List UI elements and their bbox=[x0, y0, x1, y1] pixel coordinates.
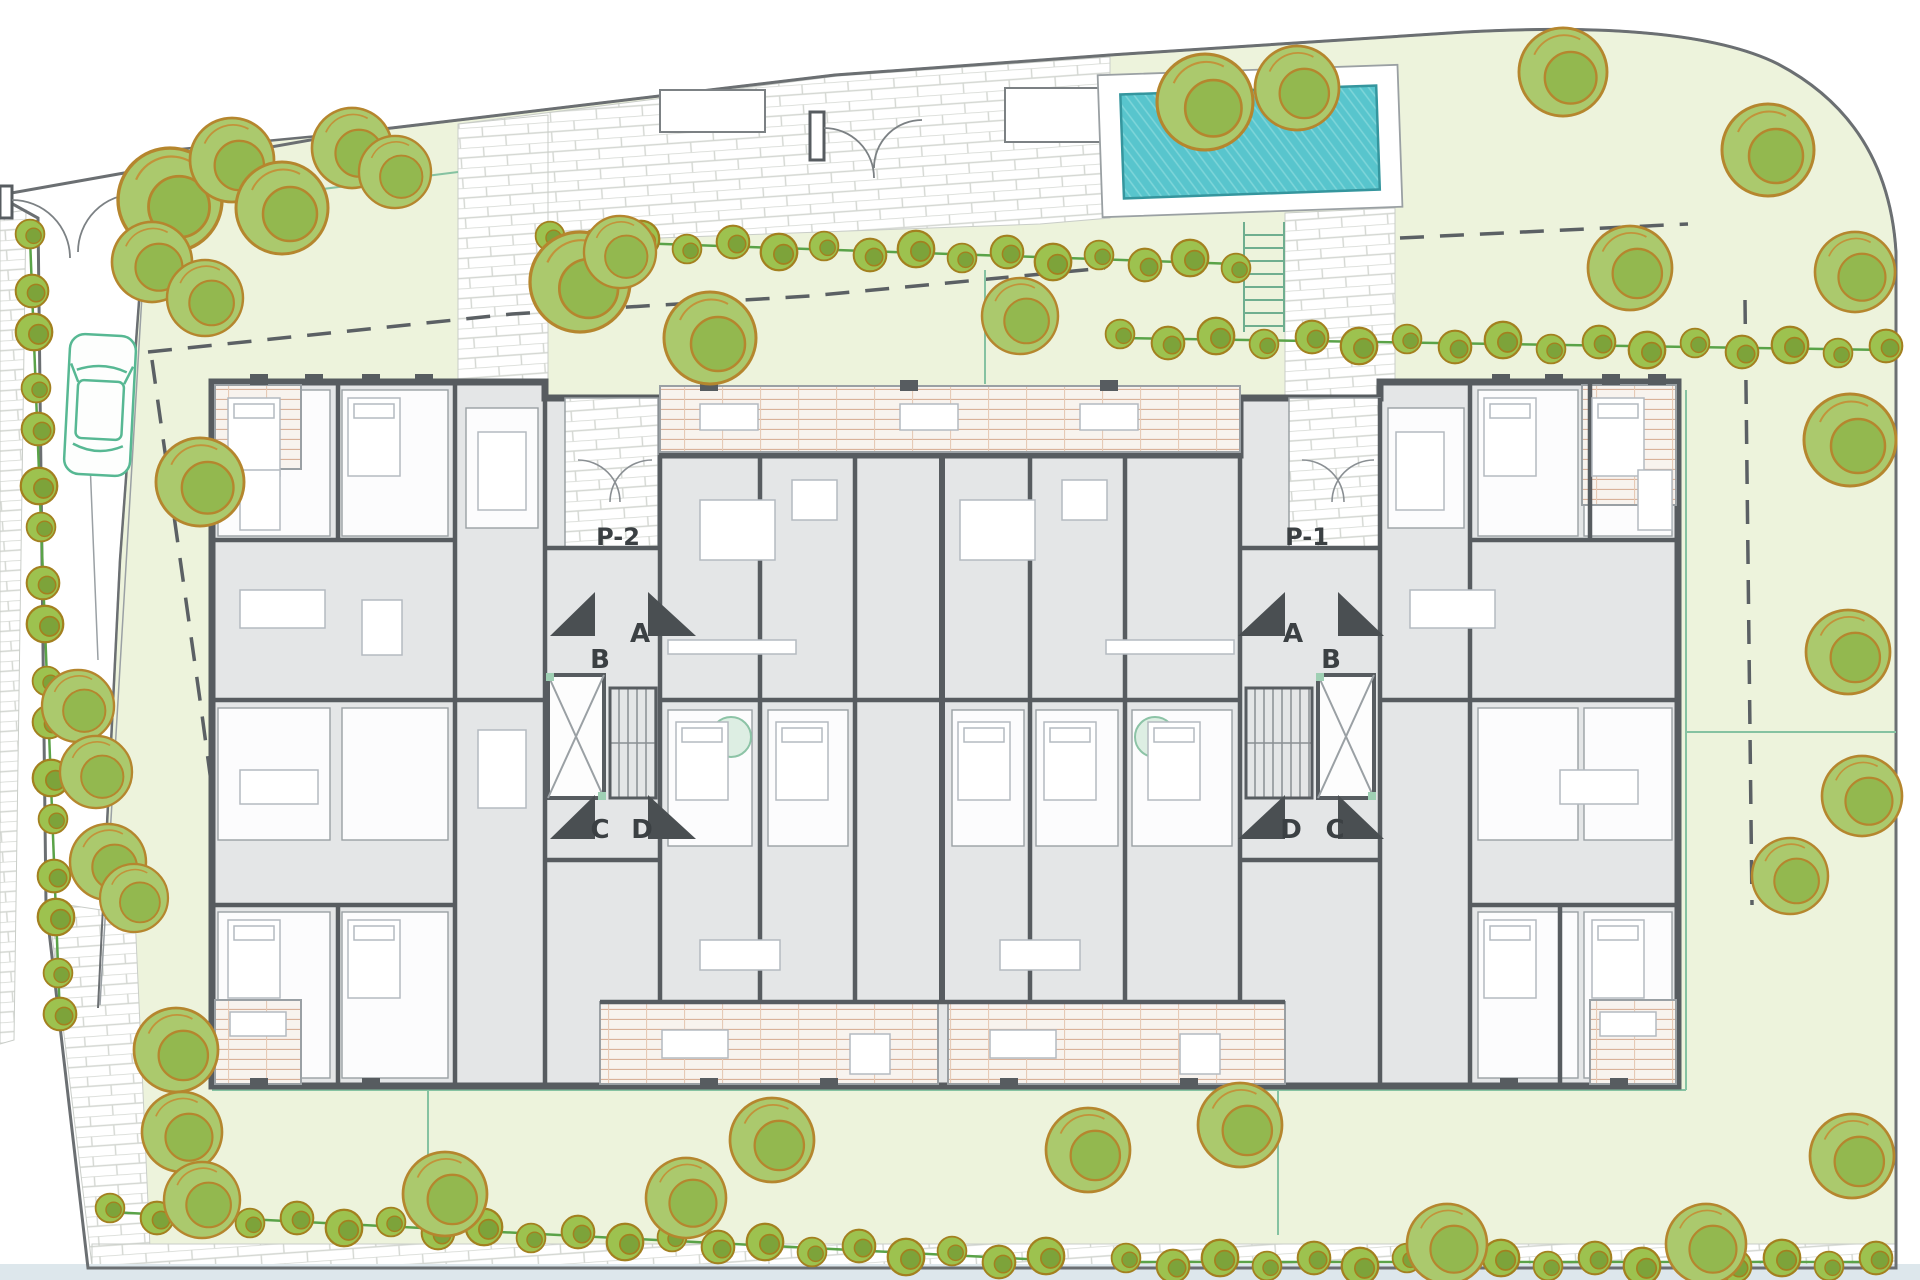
tree-icon bbox=[134, 1008, 218, 1092]
hedge-bush-icon bbox=[1106, 320, 1135, 349]
tree-icon bbox=[1519, 28, 1607, 116]
tree-icon bbox=[1822, 756, 1902, 836]
hedge-bush-icon bbox=[607, 1224, 643, 1260]
hedge-bush-icon bbox=[1534, 1252, 1563, 1280]
hedge-bush-icon bbox=[236, 1209, 265, 1238]
bed-icon bbox=[1484, 398, 1536, 476]
label-entrance-p2: P-2 bbox=[596, 523, 640, 551]
tree-icon bbox=[1198, 1083, 1282, 1167]
boundary-notch-west bbox=[660, 90, 765, 132]
hedge-bush-icon bbox=[38, 899, 74, 935]
hedge-bush-icon bbox=[27, 567, 60, 600]
hedge-bush-icon bbox=[1342, 1248, 1378, 1280]
building bbox=[212, 374, 1678, 1089]
window-sill-icon bbox=[362, 374, 380, 385]
hedge-bush-icon bbox=[16, 275, 49, 308]
furniture-icon bbox=[960, 500, 1035, 560]
hedge-bush-icon bbox=[377, 1208, 406, 1237]
label-apartment-c-left: C bbox=[590, 815, 609, 845]
hedge-bush-icon bbox=[16, 314, 52, 350]
elevator-left bbox=[546, 673, 606, 800]
furniture-icon bbox=[700, 940, 780, 970]
bed-icon bbox=[958, 722, 1010, 800]
furniture-icon bbox=[662, 1030, 728, 1058]
hedge-bush-icon bbox=[517, 1224, 546, 1253]
hedge-bush-icon bbox=[810, 232, 839, 261]
hedge-bush-icon bbox=[1035, 244, 1071, 280]
bed-icon bbox=[1044, 722, 1096, 800]
bed-icon bbox=[776, 722, 828, 800]
tree-icon bbox=[646, 1158, 726, 1238]
window-sill-icon bbox=[1648, 374, 1666, 385]
label-apartment-b-right: B bbox=[1321, 645, 1341, 675]
window-sill-icon bbox=[1545, 374, 1563, 385]
window-sill-icon bbox=[415, 374, 433, 385]
hedge-bush-icon bbox=[1393, 325, 1422, 354]
hedge-bush-icon bbox=[761, 234, 797, 270]
hedge-bush-icon bbox=[1824, 339, 1853, 368]
tree-icon bbox=[584, 216, 656, 288]
hedge-bush-icon bbox=[1772, 327, 1808, 363]
window-sill-icon bbox=[1610, 1078, 1628, 1089]
hedge-bush-icon bbox=[1298, 1242, 1331, 1275]
furniture-icon bbox=[700, 500, 775, 560]
hedge-bush-icon bbox=[898, 231, 934, 267]
hedge-bush-icon bbox=[22, 374, 51, 403]
furniture-icon bbox=[1062, 480, 1107, 520]
tree-icon bbox=[100, 864, 168, 932]
hedge-bush-icon bbox=[1726, 336, 1759, 369]
label-apartment-c-right: C bbox=[1325, 815, 1344, 845]
furniture-icon bbox=[1638, 470, 1672, 530]
furniture-icon bbox=[362, 600, 402, 655]
hedge-bush-icon bbox=[1485, 322, 1521, 358]
furniture-icon bbox=[900, 404, 958, 430]
hedge-bush-icon bbox=[1624, 1248, 1660, 1280]
tree-icon bbox=[60, 736, 132, 808]
tree-icon bbox=[1722, 104, 1814, 196]
hedge-bush-icon bbox=[96, 1194, 125, 1223]
furniture-icon bbox=[668, 640, 796, 654]
hedge-bush-icon bbox=[1085, 241, 1114, 270]
label-entrance-p1: P-1 bbox=[1285, 523, 1329, 551]
furniture-icon bbox=[240, 590, 325, 628]
furniture-icon bbox=[478, 730, 526, 808]
label-apartment-d-left: D bbox=[631, 815, 653, 845]
furniture-icon bbox=[850, 1034, 890, 1074]
hedge-bush-icon bbox=[1202, 1240, 1238, 1276]
tree-icon bbox=[142, 1092, 222, 1172]
tree-icon bbox=[403, 1152, 487, 1236]
window-sill-icon bbox=[820, 1078, 838, 1089]
hedge-bush-icon bbox=[1537, 335, 1566, 364]
tree-icon bbox=[42, 670, 114, 742]
hedge-bush-icon bbox=[1583, 326, 1616, 359]
window-sill-icon bbox=[700, 1078, 718, 1089]
hedge-bush-icon bbox=[1579, 1242, 1612, 1275]
furniture-icon bbox=[700, 404, 758, 430]
boundary-notch-east bbox=[1005, 88, 1105, 142]
label-apartment-a-right: A bbox=[1283, 619, 1303, 649]
furniture-icon bbox=[1410, 590, 1495, 628]
hedge-bush-icon bbox=[22, 413, 55, 446]
hedge-bush-icon bbox=[1152, 327, 1185, 360]
hedge-bush-icon bbox=[44, 998, 77, 1031]
tree-icon bbox=[1815, 232, 1895, 312]
furniture-icon bbox=[1106, 640, 1234, 654]
hedge-bush-icon bbox=[1250, 330, 1279, 359]
elevator-right bbox=[1316, 673, 1376, 800]
hedge-bush-icon bbox=[1815, 1252, 1844, 1280]
hedge-bush-icon bbox=[1172, 240, 1208, 276]
bed-icon bbox=[1592, 920, 1644, 998]
hedge-bush-icon bbox=[983, 1246, 1016, 1279]
bed-icon bbox=[1148, 722, 1200, 800]
tree-icon bbox=[1666, 1204, 1746, 1280]
tree-icon bbox=[1407, 1204, 1487, 1280]
hedge-bush-icon bbox=[1870, 330, 1903, 363]
hedge-bush-icon bbox=[39, 805, 68, 834]
tree-icon bbox=[1806, 610, 1890, 694]
hedge-bush-icon bbox=[1028, 1238, 1064, 1274]
tree-icon bbox=[156, 438, 244, 526]
bed-icon bbox=[348, 398, 400, 476]
hedge-bush-icon bbox=[854, 239, 887, 272]
hedge-bush-icon bbox=[326, 1210, 362, 1246]
window-sill-icon bbox=[1602, 374, 1620, 385]
window-sill-icon bbox=[1100, 380, 1118, 391]
hedge-bush-icon bbox=[843, 1230, 876, 1263]
bed-icon bbox=[1484, 920, 1536, 998]
tree-icon bbox=[982, 278, 1058, 354]
tree-icon bbox=[1046, 1108, 1130, 1192]
hedge-bush-icon bbox=[1681, 329, 1710, 358]
window-sill-icon bbox=[305, 374, 323, 385]
label-apartment-d-right: D bbox=[1280, 815, 1302, 845]
hedge-bush-icon bbox=[673, 235, 702, 264]
site-plan-svg: P-2 P-1 A B C D A B D C bbox=[0, 0, 1920, 1280]
tree-icon bbox=[664, 292, 756, 384]
furniture-icon bbox=[1600, 1012, 1656, 1036]
hedge-bush-icon bbox=[1341, 328, 1377, 364]
hedge-bush-icon bbox=[27, 606, 63, 642]
tree-icon bbox=[164, 1162, 240, 1238]
hedge-bush-icon bbox=[1157, 1250, 1190, 1280]
tree-icon bbox=[1752, 838, 1828, 914]
hedge-bush-icon bbox=[16, 220, 45, 249]
tree-icon bbox=[1255, 46, 1339, 130]
hedge-bush-icon bbox=[888, 1239, 924, 1275]
hedge-bush-icon bbox=[1253, 1252, 1282, 1280]
window-sill-icon bbox=[1500, 1078, 1518, 1089]
hedge-bush-icon bbox=[1764, 1240, 1800, 1276]
furniture-icon bbox=[240, 770, 318, 804]
hedge-bush-icon bbox=[281, 1202, 314, 1235]
hedge-bush-icon bbox=[44, 959, 73, 988]
bed-icon bbox=[676, 722, 728, 800]
tree-icon bbox=[1804, 394, 1896, 486]
window-sill-icon bbox=[362, 1078, 380, 1089]
car-icon bbox=[63, 333, 136, 476]
label-apartment-b-left: B bbox=[590, 645, 610, 675]
hedge-bush-icon bbox=[747, 1224, 783, 1260]
furniture-icon bbox=[1396, 432, 1444, 510]
furniture-icon bbox=[1000, 940, 1080, 970]
hedge-bush-icon bbox=[1629, 332, 1665, 368]
tree-icon bbox=[236, 162, 328, 254]
window-sill-icon bbox=[250, 1078, 268, 1089]
furniture-icon bbox=[478, 432, 526, 510]
furniture-icon bbox=[990, 1030, 1056, 1058]
tree-icon bbox=[167, 260, 243, 336]
window-sill-icon bbox=[250, 374, 268, 385]
window-sill-icon bbox=[1000, 1078, 1018, 1089]
site-plan-canvas: P-2 P-1 A B C D A B D C bbox=[0, 0, 1920, 1280]
furniture-icon bbox=[230, 1012, 286, 1036]
hedge-bush-icon bbox=[1439, 331, 1472, 364]
hedge-bush-icon bbox=[562, 1216, 595, 1249]
tree-icon bbox=[730, 1098, 814, 1182]
label-apartment-a-left: A bbox=[630, 619, 650, 649]
tree-icon bbox=[1157, 54, 1253, 150]
furniture-icon bbox=[1560, 770, 1638, 804]
hedge-bush-icon bbox=[1222, 254, 1251, 283]
tree-icon bbox=[359, 136, 431, 208]
hedge-bush-icon bbox=[702, 1231, 735, 1264]
hedge-bush-icon bbox=[991, 236, 1024, 269]
bed-icon bbox=[1592, 398, 1644, 476]
hedge-bush-icon bbox=[1198, 318, 1234, 354]
window-sill-icon bbox=[1492, 374, 1510, 385]
bed-icon bbox=[348, 920, 400, 998]
tree-icon bbox=[1588, 226, 1672, 310]
hedge-bush-icon bbox=[948, 244, 977, 273]
hedge-bush-icon bbox=[1296, 321, 1329, 354]
furniture-icon bbox=[240, 470, 280, 530]
hedge-bush-icon bbox=[798, 1238, 827, 1267]
hedge-bush-icon bbox=[717, 226, 750, 259]
furniture-icon bbox=[1180, 1034, 1220, 1074]
window-sill-icon bbox=[1180, 1078, 1198, 1089]
bed-icon bbox=[228, 920, 280, 998]
hedge-bush-icon bbox=[1860, 1242, 1893, 1275]
hedge-bush-icon bbox=[27, 513, 56, 542]
tree-icon bbox=[1810, 1114, 1894, 1198]
hedge-bush-icon bbox=[1129, 249, 1162, 282]
hedge-bush-icon bbox=[1112, 1244, 1141, 1273]
furniture-icon bbox=[1080, 404, 1138, 430]
hedge-bush-icon bbox=[38, 860, 71, 893]
hedge-bush-icon bbox=[21, 468, 57, 504]
furniture-icon bbox=[792, 480, 837, 520]
window-sill-icon bbox=[900, 380, 918, 391]
hedge-bush-icon bbox=[938, 1237, 967, 1266]
